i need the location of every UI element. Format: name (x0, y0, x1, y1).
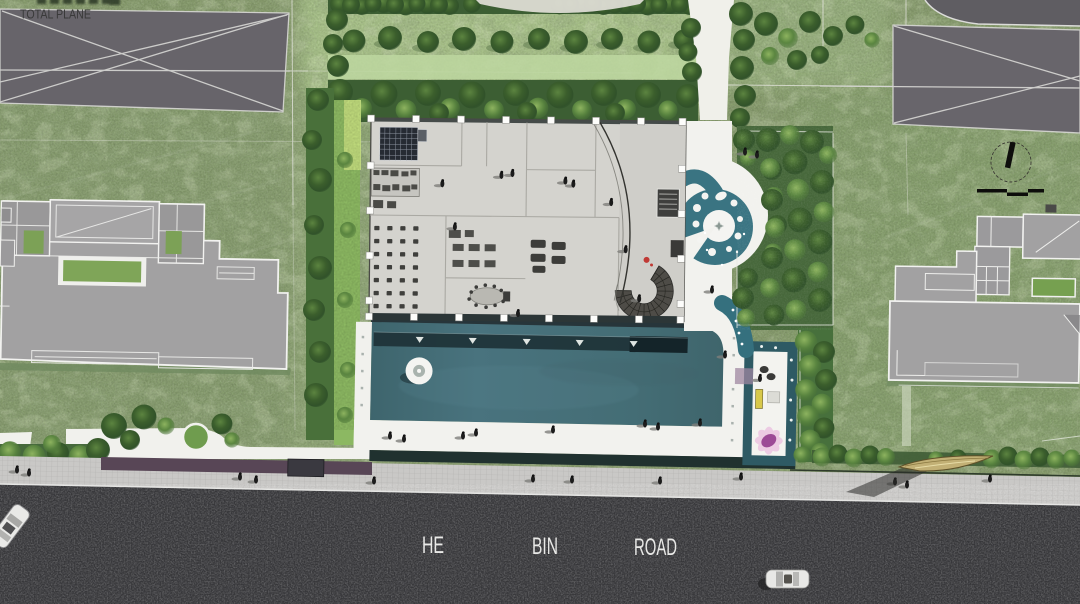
svg-text:BIN: BIN (532, 533, 558, 560)
svg-text:ROAD: ROAD (634, 534, 677, 561)
svg-text:HE: HE (422, 532, 444, 559)
svg-text:TOTAL PLANE: TOTAL PLANE (20, 8, 91, 22)
